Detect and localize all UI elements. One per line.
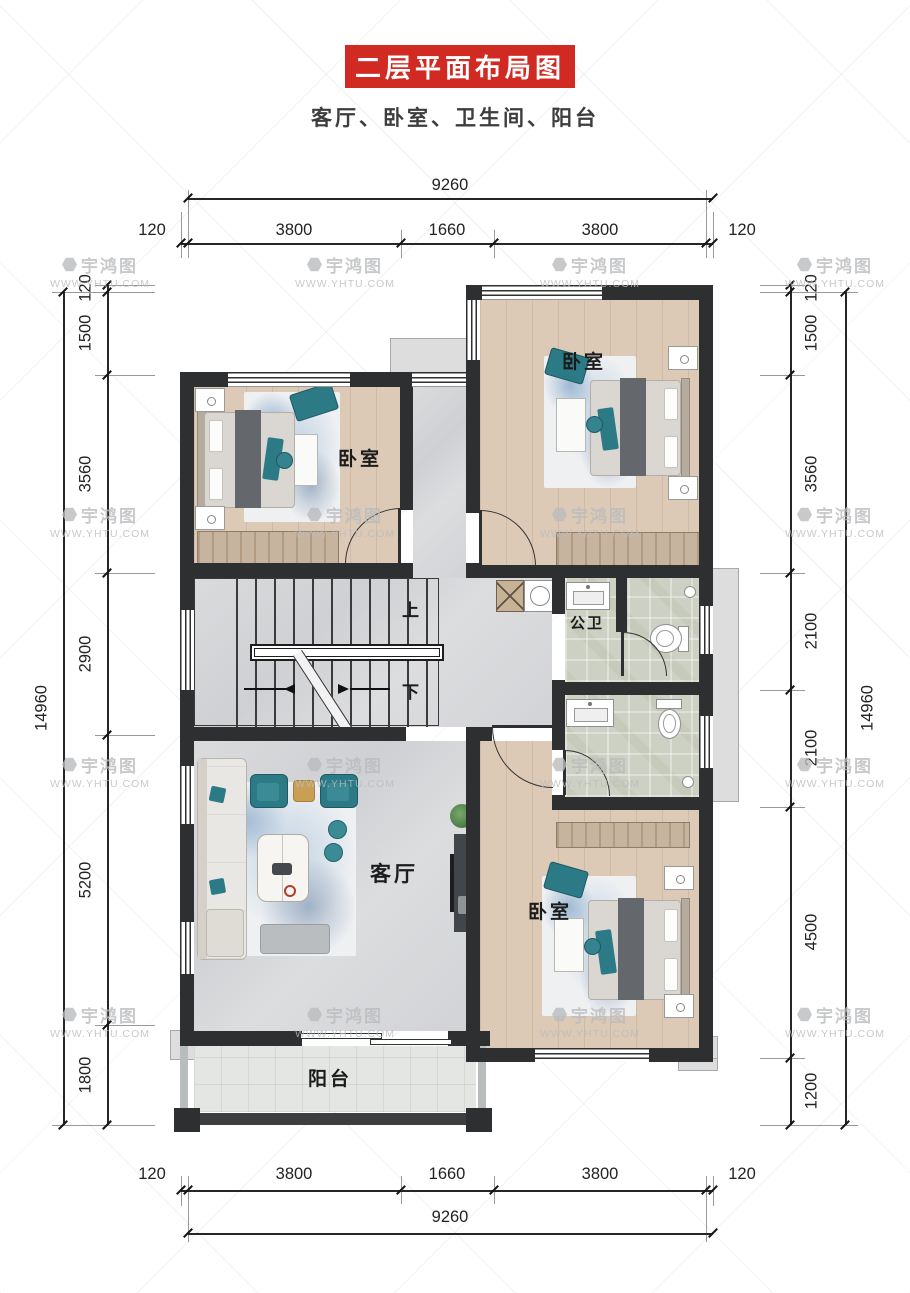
armchair-icon [250,774,288,808]
balcony-post [174,1108,200,1132]
wardrobe-icon [556,822,690,848]
stairs-arrow-right-icon [338,684,349,694]
watermark: 宇鸿图WWW.YHTU.COM [775,1002,895,1040]
dim-value: 9260 [432,1208,469,1227]
balcony-sliding-door [300,1033,450,1045]
watermark-brand: 宇鸿图 [816,252,873,277]
window-bedroom1-top [228,372,350,387]
sink-icon [566,699,614,727]
watermark-brand: 宇鸿图 [81,502,138,527]
page-title-banner: 二层平面布局图 [345,45,575,88]
wall-bathrooms-top [466,565,713,578]
stairs-up-label: 上 [402,596,422,621]
sofa-icon [197,758,247,960]
extension-line [760,690,805,691]
watermark: 宇鸿图WWW.YHTU.COM [285,252,405,290]
armchair-icon [320,774,358,808]
window-bathroom2-right [699,716,713,768]
watermark: 宇鸿图WWW.YHTU.COM [40,502,160,540]
wall-bedroom1-bottom [180,563,413,578]
watermark-url: WWW.YHTU.COM [40,528,160,540]
dim-value: 1500 [803,315,822,352]
dim-value: 1500 [77,315,96,352]
nightstand-icon [668,346,698,370]
desk-icon [556,398,586,452]
sink-icon [566,582,610,610]
wardrobe-icon [556,532,701,567]
watermark-brand: 宇鸿图 [81,752,138,777]
page-title: 二层平面布局图 [355,48,565,85]
dim-value: 2100 [803,730,822,767]
extension-line [760,573,805,574]
window-bathroom1-right [699,606,713,654]
stairs-down-label: 下 [402,678,422,703]
balcony-rail-left [180,1046,188,1110]
wall-bathroom-left-a [552,578,565,614]
dim-value: 120 [138,1165,166,1184]
watermark: 宇鸿图WWW.YHTU.COM [775,502,895,540]
door-bedroom1-leaf [398,508,401,564]
dim-line [845,292,847,1125]
window-corridor-top [412,372,466,387]
shaft-icon [496,580,524,612]
wardrobe-icon [197,531,339,565]
floor-plan-page: 二层平面布局图 客厅、卧室、卫生间、阳台 [0,0,910,1293]
dim-value: 3800 [276,221,313,240]
watermark-url: WWW.YHTU.COM [40,278,160,290]
dim-value: 1660 [429,221,466,240]
stairs-arrow-line-right [350,688,390,690]
window-bedroom2-top [482,285,602,300]
watermark: 宇鸿图WWW.YHTU.COM [775,752,895,790]
window-bedroom2-left [466,300,480,360]
yhtu-logo-icon [797,257,812,272]
nightstand-icon [664,994,694,1018]
yhtu-logo-icon [307,257,322,272]
window-living-left-1 [180,766,194,824]
dim-value: 120 [803,274,822,302]
watermark-url: WWW.YHTU.COM [40,778,160,790]
watermark-brand: 宇鸿图 [571,252,628,277]
dim-value: 5200 [77,862,96,899]
stool-icon [324,843,343,862]
tv-bench-icon [260,924,330,954]
window-living-left-2 [180,922,194,974]
dim-value: 4500 [803,914,822,951]
watermark-url: WWW.YHTU.COM [40,1028,160,1040]
watermark: 宇鸿图WWW.YHTU.COM [40,752,160,790]
wall-stair-bottom [180,727,406,741]
watermark: 宇鸿图WWW.YHTU.COM [40,1002,160,1040]
door-bedroom2-leaf [479,510,482,566]
balcony-label: 阳台 [308,1064,352,1091]
door-vestibule-leaf [492,725,552,728]
dim-value: 120 [728,221,756,240]
window-stairs-left [180,610,194,690]
extension-line [760,1058,805,1059]
toilet-tank-icon [656,699,682,709]
extension-line [706,190,707,258]
balcony-post [466,1108,492,1132]
chair-icon [586,416,603,433]
nightstand-icon [195,388,225,412]
dim-value: 3800 [582,1165,619,1184]
extension-line [188,190,189,258]
balcony-rail-front [196,1113,470,1125]
wall-bedroom1-right [400,386,413,510]
yhtu-logo-icon [797,507,812,522]
tv-console-icon [454,834,466,932]
watermark-url: WWW.YHTU.COM [775,1028,895,1040]
bedroom-top-left-label: 卧室 [338,444,382,471]
watermark-brand: 宇鸿图 [326,252,383,277]
wall-living-bedroom3 [466,741,480,1048]
extension-line [760,807,805,808]
dim-value: 2900 [77,636,96,673]
door-bathroom2-leaf [563,750,566,795]
wall-bathroom-divider [552,682,713,695]
dim-value: 2100 [803,613,822,650]
extension-line [760,375,805,376]
dim-line [107,285,109,1125]
wall-living-bottom-a [180,1031,302,1046]
dim-value: 1200 [803,1073,822,1110]
bed-icon [586,898,688,1000]
stool-icon [328,820,347,839]
dim-value: 1660 [429,1165,466,1184]
yhtu-logo-icon [62,257,77,272]
nightstand-icon [664,866,694,890]
chair-icon [584,938,601,955]
desk-icon [554,918,584,972]
nightstand-icon [195,506,225,530]
coffee-table-icon [257,834,309,902]
extension-line [760,285,805,286]
dim-line [188,1233,713,1235]
dim-value: 3560 [803,456,822,493]
side-table-icon [293,780,315,802]
nightstand-icon [668,476,698,500]
extension-line [713,212,714,258]
living-room-label: 客厅 [370,858,418,888]
dim-value: 3800 [276,1165,313,1184]
dim-line [790,285,792,1125]
dim-value: 3800 [582,221,619,240]
floor-corridor [413,387,466,578]
yhtu-logo-icon [552,257,567,272]
stairs-handrail [250,644,444,661]
dim-line [188,198,713,200]
bedroom-top-right-label: 卧室 [562,347,606,374]
bedroom-bottom-right-label: 卧室 [528,897,572,924]
shower-head-icon [684,586,696,598]
door-bathroom1-leaf [621,632,624,676]
tv-icon [450,854,454,912]
watermark-url: WWW.YHTU.COM [285,278,405,290]
watermark-url: WWW.YHTU.COM [775,778,895,790]
chair-icon [276,452,293,469]
dim-line [181,243,713,245]
dim-value: 120 [77,274,96,302]
stairs-arrow-line-left [244,688,286,690]
wall-bathroom2-bottom [552,797,713,810]
yhtu-logo-icon [797,1007,812,1022]
dim-value: 14960 [33,685,52,731]
dim-value: 14960 [859,685,878,731]
toilet-icon [658,709,681,739]
bed-icon [588,378,688,476]
extension-line [181,212,182,258]
watermark-url: WWW.YHTU.COM [775,528,895,540]
stairs-arrow-left-icon [284,684,295,694]
dim-value: 120 [728,1165,756,1184]
window-bedroom3-bottom [535,1048,649,1062]
dim-value: 120 [138,221,166,240]
dim-value: 9260 [432,176,469,195]
dim-value: 1800 [77,1057,96,1094]
bathroom-public-label: 公卫 [570,612,604,633]
wall-bathroom1-stall [616,578,627,632]
shower-head-icon [682,776,694,788]
page-subtitle: 客厅、卧室、卫生间、阳台 [0,102,910,132]
wall-hall-bottom-stub [466,727,492,741]
dim-line [63,292,65,1125]
dim-value: 3560 [77,456,96,493]
dim-line [181,1190,713,1192]
wall-right-exterior [699,285,713,1062]
